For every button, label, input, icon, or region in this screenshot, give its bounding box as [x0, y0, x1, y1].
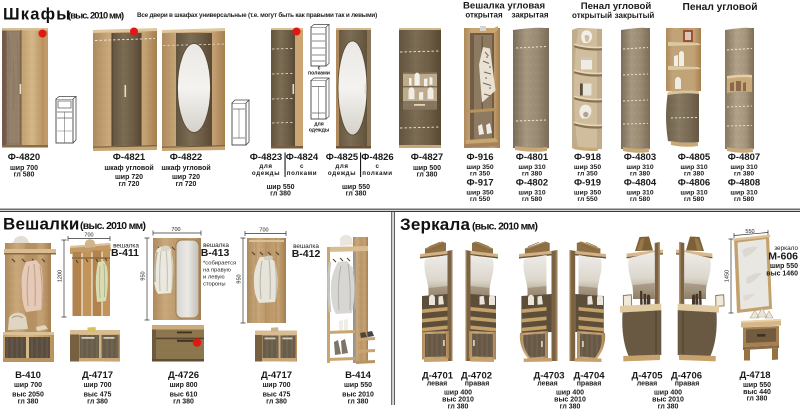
- svg-text:гл 580: гл 580: [684, 196, 704, 203]
- svg-text:гл 380: гл 380: [448, 403, 469, 410]
- svg-text:гл 380: гл 380: [684, 171, 704, 178]
- svg-text:1450: 1450: [725, 270, 731, 282]
- svg-text:Д-4726: Д-4726: [168, 370, 199, 381]
- svg-text:Ф-4808: Ф-4808: [728, 178, 760, 189]
- svg-text:гл 380: гл 380: [658, 403, 679, 410]
- svg-text:одежды: одежды: [328, 170, 356, 177]
- svg-text:гл 380: гл 380: [266, 399, 287, 406]
- svg-text:М-606: М-606: [768, 251, 798, 263]
- svg-text:правая: правая: [465, 381, 490, 388]
- svg-text:шир 700: шир 700: [14, 382, 42, 389]
- svg-text:полками: полками: [287, 170, 317, 177]
- svg-text:Ф-4827: Ф-4827: [411, 152, 443, 163]
- svg-text:закрытая: закрытая: [511, 11, 548, 20]
- svg-text:гл 380: гл 380: [18, 399, 39, 406]
- svg-text:Зеркала: Зеркала: [400, 215, 470, 234]
- svg-text:*собирается: *собирается: [203, 261, 236, 267]
- svg-text:Ф-917: Ф-917: [466, 178, 493, 189]
- svg-text:Ф-4805: Ф-4805: [678, 152, 711, 163]
- svg-text:одежды: одежды: [309, 128, 330, 134]
- svg-text:на правую: на правую: [203, 268, 231, 274]
- svg-text:гл 380: гл 380: [346, 191, 367, 198]
- svg-text:гл 380: гл 380: [747, 396, 768, 403]
- svg-text:Ф-4803: Ф-4803: [624, 152, 656, 163]
- svg-text:правая: правая: [675, 381, 700, 388]
- svg-text:950: 950: [141, 271, 147, 280]
- svg-text:Ф-919: Ф-919: [574, 178, 601, 189]
- svg-text:Все двери в шкафах универсальн: Все двери в шкафах универсальные (т.е. м…: [137, 11, 377, 19]
- svg-text:Ф-4826: Ф-4826: [361, 152, 393, 163]
- svg-text:700: 700: [259, 228, 268, 234]
- svg-text:Д-4717: Д-4717: [261, 370, 292, 381]
- svg-text:шир 550: шир 550: [344, 382, 372, 389]
- svg-text:950: 950: [237, 274, 243, 283]
- svg-text:гл 580: гл 580: [522, 196, 542, 203]
- svg-text:В-412: В-412: [292, 248, 321, 260]
- svg-text:выс 2010: выс 2010: [342, 392, 374, 399]
- svg-text:гл 380: гл 380: [173, 399, 194, 406]
- svg-text:полками: полками: [308, 71, 330, 77]
- svg-text:В-414: В-414: [345, 370, 372, 381]
- svg-text:(выс. 2010 мм): (выс. 2010 мм): [472, 222, 538, 233]
- svg-text:1200: 1200: [58, 270, 64, 282]
- svg-text:шир 400: шир 400: [444, 390, 472, 397]
- svg-text:шир 400: шир 400: [556, 390, 584, 397]
- svg-text:полками: полками: [362, 170, 392, 177]
- svg-text:с: с: [300, 163, 304, 170]
- svg-text:гл 380: гл 380: [734, 171, 754, 178]
- svg-text:В-411: В-411: [111, 247, 139, 259]
- svg-text:гл 350: гл 350: [577, 171, 597, 178]
- svg-text:Ф-4806: Ф-4806: [678, 178, 710, 189]
- svg-text:Ф-4823: Ф-4823: [250, 152, 282, 163]
- svg-text:гл 550: гл 550: [577, 196, 597, 203]
- svg-text:(выс. 2010 мм): (выс. 2010 мм): [80, 221, 146, 232]
- svg-text:Ф-4825: Ф-4825: [326, 152, 359, 163]
- svg-text:гл 580: гл 580: [734, 196, 754, 203]
- svg-text:шкаф угловой: шкаф угловой: [161, 164, 210, 172]
- svg-text:Д-4717: Д-4717: [82, 370, 113, 381]
- svg-text:гл 380: гл 380: [270, 191, 291, 198]
- svg-text:гл 580: гл 580: [14, 172, 35, 179]
- svg-text:Шкафы: Шкафы: [3, 5, 72, 23]
- svg-text:одежды: одежды: [252, 170, 280, 177]
- svg-text:(выс. 2010 мм): (выс. 2010 мм): [68, 11, 124, 21]
- svg-text:700: 700: [84, 233, 93, 239]
- svg-text:Ф-4824: Ф-4824: [286, 152, 319, 163]
- svg-text:шир 800: шир 800: [169, 382, 197, 389]
- svg-text:гл 720: гл 720: [119, 181, 140, 188]
- svg-text:шир 700: шир 700: [262, 382, 290, 389]
- svg-text:гл 380: гл 380: [348, 399, 369, 406]
- svg-text:Ф-4804: Ф-4804: [624, 178, 657, 189]
- svg-text:для: для: [335, 163, 348, 170]
- svg-text:для: для: [259, 163, 272, 170]
- svg-text:выс 475: выс 475: [263, 392, 291, 399]
- svg-text:Вешалки: Вешалки: [3, 215, 80, 234]
- svg-text:Ф-4820: Ф-4820: [8, 152, 40, 163]
- svg-text:гл 580: гл 580: [630, 196, 650, 203]
- svg-text:гл 720: гл 720: [176, 181, 197, 188]
- svg-text:Пенал угловой: Пенал угловой: [683, 2, 758, 13]
- svg-text:Ф-918: Ф-918: [574, 152, 601, 163]
- svg-text:В-413: В-413: [201, 247, 230, 259]
- svg-text:с: с: [375, 163, 379, 170]
- svg-text:шир 400: шир 400: [654, 390, 682, 397]
- svg-text:700: 700: [171, 227, 180, 233]
- svg-text:Ф-4821: Ф-4821: [113, 152, 146, 163]
- svg-text:гл 350: гл 350: [470, 171, 490, 178]
- svg-text:Ф-4822: Ф-4822: [170, 152, 202, 163]
- svg-text:левая: левая: [427, 381, 447, 388]
- svg-text:гл 380: гл 380: [560, 403, 581, 410]
- svg-text:выс 1460: выс 1460: [766, 271, 798, 278]
- svg-text:выс 2050: выс 2050: [12, 392, 44, 399]
- svg-text:Ф-916: Ф-916: [466, 152, 493, 163]
- svg-text:Ф-4802: Ф-4802: [516, 178, 548, 189]
- svg-text:гл 380: гл 380: [522, 171, 542, 178]
- svg-text:и левую: и левую: [203, 275, 225, 281]
- svg-text:выс 475: выс 475: [84, 392, 112, 399]
- svg-text:левая: левая: [637, 381, 657, 388]
- svg-text:правая: правая: [577, 381, 602, 388]
- svg-text:открытый: открытый: [572, 11, 612, 20]
- svg-text:гл 380: гл 380: [630, 171, 650, 178]
- svg-text:стороны: стороны: [203, 282, 226, 288]
- svg-text:шкаф угловой: шкаф угловой: [104, 164, 153, 172]
- svg-text:Д-4718: Д-4718: [739, 370, 770, 381]
- svg-text:шир 700: шир 700: [83, 382, 111, 389]
- svg-text:закрытый: закрытый: [615, 11, 655, 20]
- svg-text:гл 550: гл 550: [470, 196, 490, 203]
- svg-text:левая: левая: [537, 381, 557, 388]
- svg-text:гл 380: гл 380: [417, 172, 438, 179]
- svg-text:выс 610: выс 610: [170, 392, 198, 399]
- svg-text:гл 380: гл 380: [87, 399, 108, 406]
- svg-text:Ф-4801: Ф-4801: [516, 152, 549, 163]
- svg-text:В-410: В-410: [15, 370, 41, 381]
- svg-text:открытая: открытая: [465, 11, 503, 20]
- svg-text:шир 550: шир 550: [770, 263, 798, 270]
- svg-text:Ф-4807: Ф-4807: [728, 152, 760, 163]
